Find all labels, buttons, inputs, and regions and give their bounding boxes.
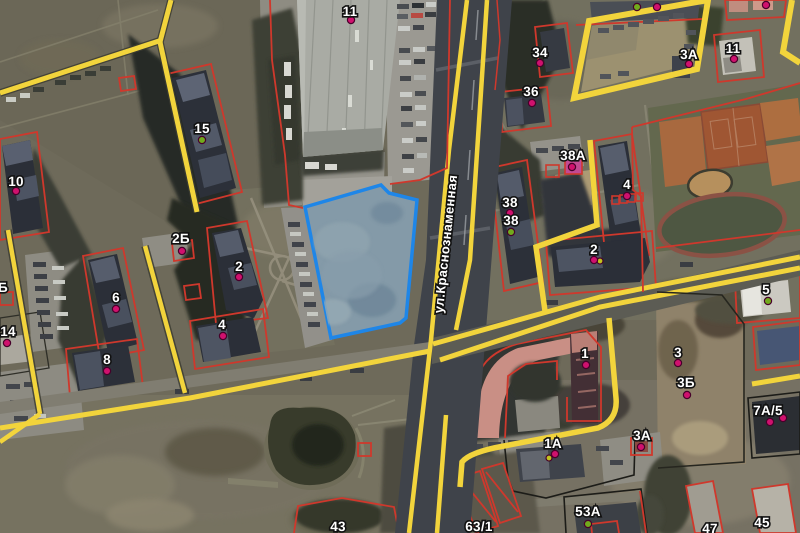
svg-text:45: 45 — [754, 515, 770, 530]
svg-text:43: 43 — [330, 519, 346, 533]
svg-text:15: 15 — [194, 121, 210, 136]
svg-text:10: 10 — [8, 174, 24, 189]
svg-text:Б: Б — [0, 280, 8, 295]
svg-text:3: 3 — [674, 345, 682, 360]
svg-text:14: 14 — [0, 324, 16, 339]
svg-text:6: 6 — [112, 290, 120, 305]
svg-text:38: 38 — [502, 195, 518, 210]
svg-text:53А: 53А — [575, 504, 601, 519]
svg-text:2: 2 — [590, 242, 598, 257]
svg-text:5: 5 — [762, 282, 770, 297]
svg-text:8: 8 — [103, 352, 111, 367]
svg-text:63/1: 63/1 — [465, 519, 493, 533]
svg-text:2Б: 2Б — [172, 231, 190, 246]
svg-text:3А: 3А — [680, 47, 698, 62]
svg-text:7А/5: 7А/5 — [753, 403, 783, 418]
svg-text:38А: 38А — [560, 148, 586, 163]
svg-text:1: 1 — [581, 346, 589, 361]
svg-text:4: 4 — [623, 177, 631, 192]
svg-text:47: 47 — [702, 521, 718, 533]
svg-text:3А: 3А — [633, 428, 651, 443]
svg-text:3Б: 3Б — [677, 375, 695, 390]
svg-text:1А: 1А — [544, 436, 562, 451]
svg-text:11: 11 — [726, 41, 741, 56]
svg-text:11: 11 — [343, 4, 358, 19]
svg-text:4: 4 — [218, 317, 226, 332]
svg-text:38: 38 — [503, 213, 519, 228]
svg-text:34: 34 — [532, 45, 548, 60]
svg-text:2: 2 — [235, 259, 243, 274]
svg-text:36: 36 — [523, 84, 539, 99]
